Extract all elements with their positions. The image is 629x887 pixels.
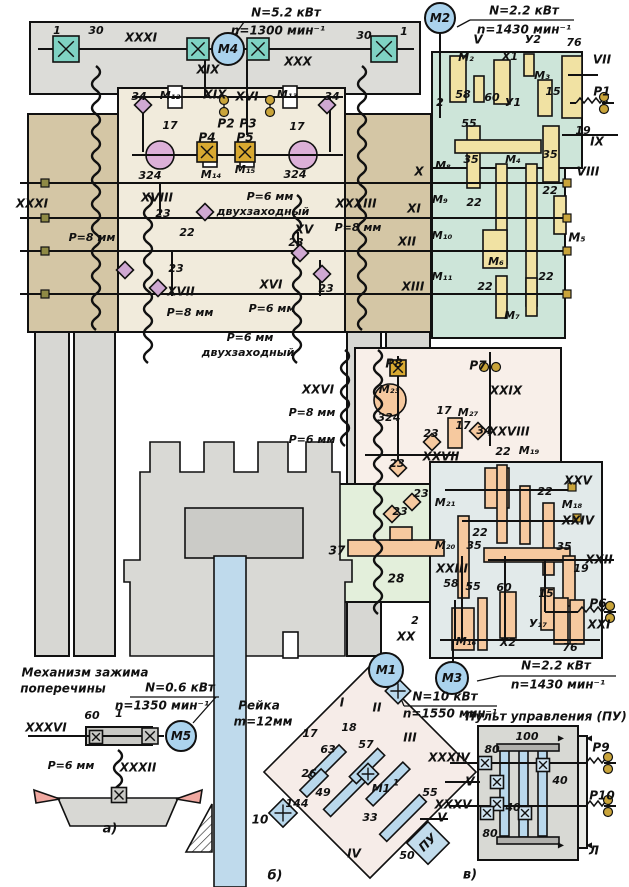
label-63: 63 (320, 743, 336, 756)
label-37: 37 (329, 544, 346, 558)
label-22: 22 (472, 526, 488, 539)
label-м: М₁₈ (562, 498, 583, 511)
label-xvi: XVI (258, 278, 283, 292)
label-у: У₁₇ (529, 617, 547, 630)
kinematic-scheme-page: М1М2М3М4М5N=5.2 кВтn=1300 мин⁻¹130XXXIXI… (0, 0, 629, 887)
label-у2: У2 (525, 33, 541, 46)
label-м: М₁₆ (456, 635, 477, 648)
label-n-5-2-квт: N=5.2 кВт (251, 6, 322, 20)
gear (478, 598, 487, 650)
label-xxxiv: XXXIV (427, 751, 471, 765)
label-м: М₁₁ (432, 270, 453, 283)
label-пульт-управления-пу: Пульт управления (ПУ) (465, 710, 627, 724)
label-22: 22 (538, 270, 554, 283)
label-76: 76 (562, 641, 578, 654)
label-22: 22 (537, 485, 553, 498)
label-34: 34 (131, 90, 146, 103)
label-p-6-мм: P=6 мм (48, 759, 95, 772)
label-22: 22 (179, 226, 195, 239)
shaft-line (457, 20, 470, 27)
label-1: 1 (115, 707, 123, 720)
label-10: 10 (252, 813, 269, 827)
label-в: в) (463, 868, 477, 883)
label-19: 19 (575, 124, 591, 137)
rack-hatch (186, 804, 212, 852)
label-p1: P1 (593, 85, 610, 99)
handwheel-knob (600, 105, 609, 114)
label-у1: У1 (505, 96, 521, 109)
label-xxvii: XXVII (422, 450, 460, 464)
label-35: 35 (466, 539, 482, 552)
label-n-1300-мин: n=1300 мин⁻¹ (231, 24, 325, 38)
label-58: 58 (455, 88, 471, 101)
motor-label-м2: М2 (430, 11, 450, 25)
label-м: М₄ (505, 153, 521, 166)
label-34: 34 (324, 90, 339, 103)
label-23: 23 (168, 262, 184, 275)
label-58: 58 (443, 577, 459, 590)
label-33: 33 (362, 811, 378, 824)
label-рейка: Рейка (238, 699, 280, 713)
label-1: 1 (53, 24, 61, 37)
shaft-terminal (563, 247, 571, 255)
gear (497, 744, 559, 751)
label-23: 23 (413, 487, 429, 500)
label-p3: P3 (239, 117, 256, 131)
shaft-terminal (41, 290, 49, 298)
label-p-6-мм: P=6 мм (249, 302, 296, 315)
label-xvi: XVI (234, 90, 259, 104)
label-40: 40 (504, 801, 521, 814)
label-i: I (340, 696, 345, 710)
label-55: 55 (461, 117, 477, 130)
label-n-1430-мин: n=1430 мин⁻¹ (511, 678, 605, 692)
label-vii: VII (593, 53, 612, 67)
label-mark: ◀ (586, 841, 593, 850)
label-м: М₈ (435, 159, 451, 172)
label-28: 28 (388, 572, 405, 586)
gear (524, 54, 534, 76)
label-17: 17 (289, 120, 305, 133)
gear (500, 592, 516, 638)
label-80: 80 (484, 743, 500, 756)
handwheel-knob (606, 602, 615, 611)
label-xi: XI (406, 202, 421, 216)
label-iii: III (403, 731, 417, 745)
label-17: 17 (455, 419, 471, 432)
handwheel-knob (604, 765, 613, 774)
label-механизм-зажима: Механизм зажима (22, 666, 149, 680)
label-15: 15 (538, 587, 554, 600)
tower-slot (283, 632, 298, 658)
label-м: М₁₀ (432, 229, 453, 242)
label-80: 80 (482, 827, 498, 840)
label-23: 23 (318, 282, 334, 295)
clamp-pad-left (34, 790, 60, 803)
handwheel-knob (492, 363, 501, 372)
label-м: М₅ (568, 231, 585, 245)
label-м1: М1 (372, 782, 391, 795)
label-xvii: XVII (166, 285, 195, 299)
label-p-6-мм: P=6 мм (289, 433, 336, 446)
label-двухзаходный: двухзаходный (216, 205, 310, 218)
gear (348, 540, 444, 556)
gear (497, 465, 507, 543)
label-м: М₉ (432, 193, 448, 206)
label-м: М₆ (488, 255, 504, 268)
label-xv: XV (294, 223, 315, 237)
label-м: М₁₄ (201, 168, 222, 181)
left-portal-column-a (35, 332, 69, 656)
motor-label-м3: М3 (442, 671, 462, 685)
label-поперечины: поперечины (20, 682, 106, 696)
label-60: 60 (496, 581, 512, 594)
gear (520, 486, 530, 544)
label-mark: ◀ (586, 734, 593, 743)
label-50: 50 (399, 849, 415, 862)
label-p5: P5 (236, 131, 253, 145)
label-35: 35 (542, 148, 558, 161)
label-23: 23 (392, 505, 408, 518)
shaft-terminal (563, 290, 571, 298)
label-57: 57 (358, 738, 374, 751)
motor-label-м5: М5 (171, 729, 191, 743)
label-xxv: XXV (563, 474, 594, 488)
gear (474, 76, 484, 102)
label-м: М₃ (534, 69, 550, 82)
label-40: 40 (551, 774, 568, 787)
handwheel-knob (220, 108, 229, 117)
label-xxxv: XXXV (433, 798, 473, 812)
label-xxxvi: XXXVI (24, 721, 67, 735)
shaft-terminal (563, 214, 571, 222)
control-panel-plate (578, 736, 587, 848)
label-30: 30 (356, 29, 372, 42)
label-м: М₂₃ (379, 383, 400, 396)
shaft-terminal (41, 214, 49, 222)
label-p-8-мм: P=8 мм (69, 231, 116, 244)
label-xviii: XVIII (140, 191, 173, 205)
shaft-terminal (563, 179, 571, 187)
label-xxix: XXIX (489, 384, 523, 398)
label-17: 17 (162, 119, 178, 132)
label-м: М₂₁ (435, 496, 456, 509)
gear (497, 837, 559, 844)
label-15: 15 (545, 85, 561, 98)
gear (500, 748, 509, 836)
label-324: 324 (139, 169, 162, 182)
label-100: 100 (516, 730, 539, 743)
label-23: 23 (155, 207, 171, 220)
label-p7: P7 (469, 359, 487, 373)
label-двухзаходный: двухзаходный (201, 346, 295, 359)
label-м: М₂₀ (435, 539, 456, 552)
label-76: 76 (566, 36, 582, 49)
label-xxxi: XXXI (15, 197, 49, 211)
shaft-terminal (41, 247, 49, 255)
label-2: 2 (411, 614, 419, 627)
label-xxvi: XXVI (301, 383, 335, 397)
label-17: 17 (436, 404, 452, 417)
label-23: 23 (288, 236, 304, 249)
label-60: 60 (84, 709, 100, 722)
label-м: М₁₅ (235, 163, 256, 176)
handwheel-knob (604, 808, 613, 817)
label-23: 23 (389, 457, 405, 470)
label-v: V (437, 811, 448, 825)
label-2: 2 (436, 96, 444, 109)
gear (390, 527, 412, 540)
gear (554, 598, 568, 644)
label-м: М₁₃ (277, 88, 298, 101)
label-n-1350-мин: n=1350 мин⁻¹ (115, 699, 209, 713)
shaft-line (477, 676, 500, 681)
gear (519, 745, 528, 837)
label-xxxii: XXXII (119, 761, 157, 775)
label-ix: IX (590, 135, 604, 149)
label-30: 30 (88, 24, 104, 37)
gear (455, 140, 541, 153)
label-22: 22 (542, 184, 558, 197)
motor-label-м4: М4 (218, 42, 238, 56)
label-p9: P9 (592, 741, 609, 755)
label-xiii: XIII (401, 280, 425, 294)
label-xxiii: XXIII (435, 562, 468, 576)
label-x2: X2 (499, 636, 516, 649)
label-м: М₁₉ (519, 444, 540, 457)
label-18: 18 (341, 721, 357, 734)
label-xxi: XXI (587, 618, 612, 632)
label-n-0-6-квт: N=0.6 кВт (145, 681, 216, 695)
label-60: 60 (484, 91, 500, 104)
clamp-pad-right (176, 790, 202, 803)
label-mark: ▶ (558, 734, 565, 743)
label-xii: XII (397, 235, 417, 249)
tower-inner (185, 508, 303, 558)
label-б: б) (267, 869, 282, 884)
label-x: X (413, 165, 424, 179)
label-35: 35 (556, 540, 572, 553)
label-x1: X1 (501, 50, 518, 63)
label-м: М₁₂ (160, 89, 181, 102)
shaft-terminal (41, 179, 49, 187)
label-p-8-мм: P=8 мм (289, 406, 336, 419)
label-22: 22 (466, 196, 482, 209)
label-м: М₂ (458, 51, 474, 64)
label-p2: P2 (217, 117, 234, 131)
label-n-2-2-квт: N=2.2 кВт (521, 659, 592, 673)
label-35: 35 (463, 153, 479, 166)
left-column-screw-block (28, 114, 118, 332)
label-p-6-мм: P=6 мм (227, 331, 274, 344)
label-м: М₂₇ (458, 406, 479, 419)
label-m-12мм: m=12мм (234, 715, 293, 729)
label-26: 26 (301, 767, 317, 780)
label-19: 19 (573, 562, 589, 575)
gear (562, 56, 582, 118)
label-p6: P6 (589, 597, 606, 611)
label-а: а) (103, 822, 118, 837)
label-n-10-квт: N=10 кВт (412, 690, 478, 704)
label-n-2-2-квт: N=2.2 кВт (489, 4, 560, 18)
label-144: 144 (286, 797, 309, 810)
label-p10: P10 (589, 789, 615, 803)
label-p8: P8 (385, 357, 402, 371)
label-xxxiii: XXXIII (334, 197, 377, 211)
label-324: 324 (284, 168, 307, 181)
kinematic-diagram: М1М2М3М4М5N=5.2 кВтn=1300 мин⁻¹130XXXIXI… (0, 0, 629, 887)
label-viii: VIII (577, 165, 600, 179)
handwheel-knob (266, 108, 275, 117)
label-p-6-мм: P=6 мм (247, 190, 294, 203)
label-mark: ▶ (558, 841, 565, 850)
label-22: 22 (495, 445, 511, 458)
label-49: 49 (314, 786, 331, 799)
label-p-8-мм: P=8 мм (335, 221, 382, 234)
left-portal-column-b (74, 332, 115, 656)
label-xix: XIX (196, 63, 221, 77)
label-23: 23 (423, 427, 439, 440)
label-xxx: XXX (283, 55, 313, 69)
label-xix: XIX (203, 88, 228, 102)
label-xxxi: XXXI (124, 31, 158, 45)
label-55: 55 (465, 580, 481, 593)
label-22: 22 (477, 280, 493, 293)
label-iv: IV (347, 847, 362, 861)
label-17: 17 (302, 727, 318, 740)
label-324: 324 (378, 411, 401, 424)
motor-label-м1: М1 (376, 663, 396, 677)
gear (526, 278, 537, 316)
label-p-8-мм: P=8 мм (167, 306, 214, 319)
handwheel-knob (266, 96, 275, 105)
label-xx: XX (396, 630, 416, 644)
label-p4: P4 (198, 131, 215, 145)
label-xxviii: XXVIII (487, 425, 530, 439)
label-ii: II (373, 701, 382, 715)
label-xxiv: XXIV (561, 514, 596, 528)
label-1: 1 (400, 25, 408, 38)
label-м: М₇ (504, 309, 520, 322)
label-1: 1 (393, 779, 399, 789)
